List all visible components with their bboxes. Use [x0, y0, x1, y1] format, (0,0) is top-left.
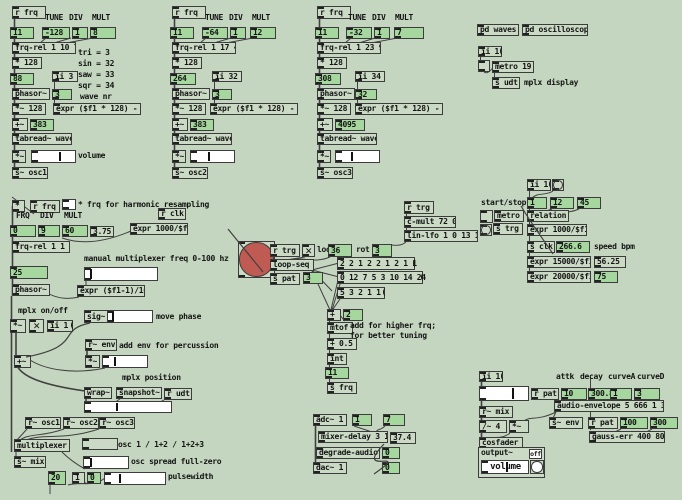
note-num-3[interactable]: 11 [315, 27, 339, 39]
loop-toggle[interactable]: ✕ [302, 244, 315, 257]
expr-wave-2[interactable]: expr ($f1 * 128) - 1 [210, 103, 298, 115]
patch-canvas: r frqTUNEDIVMULT11-12818frq-rel 1 10 7tr… [0, 0, 682, 500]
offset-num-2[interactable]: 383 [190, 119, 214, 131]
s-frq[interactable]: s frq [327, 382, 357, 394]
r-frq-1[interactable]: r frq [12, 6, 46, 19]
div-label-m: DIV [40, 212, 54, 220]
send-osc3[interactable]: s~ osc3 [317, 167, 353, 179]
div-label-3: DIV [372, 14, 386, 22]
spread-slider[interactable] [83, 456, 129, 469]
s-env[interactable]: s~ env [549, 417, 583, 429]
mplx-ii1-msg[interactable]: ii 1 [47, 320, 73, 332]
slider-knob[interactable] [90, 458, 92, 467]
sig-obj[interactable]: sig~ [84, 310, 108, 323]
mult-num-2[interactable]: 12 [250, 27, 276, 39]
offset-num-3[interactable]: 4095 [335, 119, 365, 131]
adc-num1[interactable]: 1 [352, 414, 372, 426]
r-trg-loop[interactable]: r trg [270, 244, 300, 257]
pd-oscilloscope[interactable]: pd oscilloscope [522, 24, 588, 36]
frq-rel-2[interactable]: frq-rel 1 17 4 [172, 42, 236, 54]
curvea-cmt: curveA [608, 373, 635, 381]
phase-num-1[interactable]: 88 [10, 73, 34, 85]
harmonic-cmt: * frq for harmonic resampling [78, 201, 209, 209]
output-bang[interactable] [530, 460, 544, 474]
gauss-err[interactable]: gauss-err 400 800 [589, 431, 665, 443]
toggle-check-icon: ✕ [305, 245, 311, 256]
pat-num[interactable]: 3 [303, 272, 323, 284]
mulsig-1[interactable]: *~ 128 [12, 103, 46, 115]
osc-radio-cmt: osc 1 / 1+2 / 1+2+3 [118, 441, 204, 449]
bang-icon [481, 225, 491, 235]
note-out-num[interactable]: 11 [325, 367, 349, 379]
phasor-1[interactable]: phasor~ [12, 88, 50, 100]
rel-num1[interactable]: 1 [527, 197, 547, 209]
c-mult[interactable]: c-mult 72 0 [404, 216, 456, 228]
toggle-check-icon: ✕ [33, 320, 39, 331]
mult-num-3[interactable]: 7 [394, 27, 424, 39]
offset-num-1[interactable]: 383 [30, 119, 54, 131]
phasor-2[interactable]: phasor~ [172, 88, 210, 100]
tune-num-2[interactable]: -64 [202, 27, 228, 39]
volume-cmt-1: volume [78, 152, 105, 160]
r-frq-2[interactable]: r frq [172, 6, 206, 19]
r-osc3[interactable]: r~ osc3 [99, 417, 135, 429]
adc-obj[interactable]: adc~ 1 [313, 414, 347, 426]
num-5625[interactable]: 56.25 [594, 256, 626, 268]
slider-knob[interactable] [351, 152, 353, 161]
attk-cmt: attk [556, 373, 574, 381]
env-ii1-msg[interactable]: ii 1 [479, 371, 503, 382]
ratio-num[interactable]: 3.75 [90, 226, 114, 237]
expr-20000[interactable]: expr 20000/$f1 [527, 271, 591, 283]
tune-label-3: TUNE [348, 14, 366, 22]
mplx-onoff-cmt: mplx on/off [18, 307, 68, 315]
gauss-num2[interactable]: 300 [650, 417, 678, 429]
rot-num[interactable]: 3 [372, 244, 392, 257]
tuning-cmt2: for better tuning [350, 332, 427, 340]
send-osc2[interactable]: s~ osc2 [172, 167, 208, 179]
tune-num-1[interactable]: -128 [42, 27, 70, 39]
r-env[interactable]: r~ env [85, 339, 117, 351]
mplx-mul[interactable]: *~ [10, 319, 26, 333]
saw-cmt: saw = 33 [78, 71, 114, 79]
bpm-num[interactable]: 266.6 [556, 241, 590, 253]
bang-icon [531, 461, 542, 472]
r-osc2[interactable]: r~ osc2 [63, 417, 99, 429]
phase-num-2[interactable]: 264 [170, 73, 196, 85]
rhythm-msg[interactable]: 2 2 1 2 2 1 2 1 1 [337, 257, 415, 270]
vol-slider-1[interactable] [31, 150, 76, 163]
multiplexer[interactable]: multiplexer [14, 439, 70, 452]
mix-slider[interactable] [479, 386, 529, 401]
r-pat-env[interactable]: r pat [531, 388, 559, 400]
tabread-2[interactable]: tabread~ wave [172, 133, 232, 145]
addsig-2[interactable]: +~ [172, 118, 188, 131]
delay-num[interactable]: 37.4 [390, 432, 416, 444]
add-05[interactable]: + 0.5 [327, 338, 357, 350]
melody-msg[interactable]: 0 12 7 5 3 10 14 24 [337, 271, 423, 284]
expr-1000[interactable]: expr 1000/$f1 [527, 224, 587, 236]
expr-15000[interactable]: expr 15000/$f1 [527, 256, 591, 268]
mult-label-2: MULT [252, 14, 270, 22]
pd-waves[interactable]: pd waves [477, 24, 519, 36]
note-num-2[interactable]: 11 [170, 27, 194, 39]
attk-num[interactable]: 10 [561, 388, 587, 400]
degrade-audio[interactable]: degrade-audio [316, 447, 380, 459]
mulsig-3[interactable]: *~ 128 [317, 103, 351, 115]
metro-display[interactable]: metro 19 [492, 61, 534, 73]
mult-label-3: MULT [395, 14, 413, 22]
env-cmt: add env for percussion [119, 342, 218, 350]
div-label-1: DIV [69, 14, 83, 22]
audio-envelope[interactable]: audio-envelope 5 666 1 3 1 [554, 400, 664, 412]
output-volume[interactable]: volume [481, 460, 529, 474]
phasor-m[interactable]: phasor~ [12, 284, 50, 296]
div-label-2: DIV [229, 14, 243, 22]
osc-radio[interactable] [82, 438, 118, 450]
mplx-toggle[interactable]: ✕ [29, 319, 44, 333]
frq-rel-3[interactable]: frq-rel 1 23 9 [317, 42, 381, 54]
expr-div10[interactable]: expr ($f1-1)/10 [77, 285, 145, 297]
pw-num1[interactable]: 20 [48, 471, 66, 485]
addsig-3[interactable]: +~ [317, 118, 333, 131]
sqr-cmt: sqr = 34 [78, 82, 114, 90]
vol-slider-3[interactable] [335, 150, 380, 163]
mult128-2[interactable]: * 128 [172, 57, 202, 69]
expr-wave-3[interactable]: expr ($f1 * 128) - 1 [355, 103, 443, 115]
div-num-2[interactable]: 1 [230, 27, 246, 39]
volmul-1[interactable]: *~ [12, 150, 26, 163]
num-75[interactable]: 75 [594, 271, 618, 283]
rot-cmt: rot [356, 246, 370, 254]
send-mix[interactable]: s~ mix [14, 456, 46, 468]
manual-mplx-cmt: manual multiplexer freq 0-100 hz [84, 255, 229, 263]
bang-icon [553, 180, 563, 190]
phase-slider[interactable] [107, 310, 153, 323]
degrade-num[interactable]: 0 [382, 447, 400, 459]
addsig-1[interactable]: +~ [12, 118, 28, 131]
mplx-freq-num[interactable]: 25 [10, 266, 48, 279]
sin-cmt: sin = 32 [78, 60, 114, 68]
r-osc1[interactable]: r~ osc1 [25, 417, 61, 429]
int-obj[interactable]: int [327, 353, 347, 365]
r-clk-left[interactable]: r clk [158, 208, 186, 220]
slider-knob[interactable] [512, 388, 514, 399]
mplx-pos-cmt: mplx position [122, 374, 181, 382]
add-num[interactable]: 2 [343, 309, 363, 321]
output-label: output~ [481, 449, 513, 457]
snapshot-obj[interactable]: snapshot~ [116, 387, 162, 399]
seq-ii1-msg[interactable]: ii 1 [527, 179, 551, 191]
rel-num2[interactable]: 12 [550, 197, 574, 209]
startstop-cmt: start/stop [481, 199, 526, 207]
tune-num-3[interactable]: -32 [346, 27, 372, 39]
loop-num[interactable]: 36 [328, 244, 352, 257]
mult-label-1: MULT [92, 14, 110, 22]
div-num-1[interactable]: 1 [72, 27, 88, 39]
r-udt[interactable]: r udt [164, 388, 192, 400]
mulsig-2[interactable]: *~ 128 [172, 103, 206, 115]
tabread-3[interactable]: tabread~ wave [317, 133, 377, 145]
dac-obj[interactable]: dac~ 1 [313, 462, 347, 474]
slider-knob[interactable] [59, 152, 61, 161]
frq-label-m: FRQ [16, 212, 30, 220]
pw-cmt: pulsewidth [168, 473, 213, 481]
frq-rel-1[interactable]: frq-rel 1 10 7 [12, 42, 76, 54]
bang-flash-icon [239, 242, 273, 276]
harmonic-numbox[interactable] [62, 199, 76, 210]
rel-num3[interactable]: 45 [577, 197, 601, 209]
env-mul[interactable]: *~ [85, 355, 100, 368]
wavenum-2[interactable]: 3 [212, 89, 232, 100]
vol-slider-2[interactable] [190, 150, 235, 163]
curved-num[interactable]: 3 [634, 388, 660, 400]
slider-knob[interactable] [506, 462, 508, 472]
mult-num-1[interactable]: 8 [90, 27, 116, 39]
s-trg[interactable]: s trg [493, 223, 523, 235]
pattern-msg[interactable]: 5 3 2 1 1 [337, 287, 385, 299]
wrap-obj[interactable]: wrap~ [84, 387, 112, 399]
display-toggle[interactable] [478, 60, 490, 72]
tabread-1[interactable]: tabread~ wave [12, 133, 72, 145]
mult128-1[interactable]: * 128 [12, 57, 42, 69]
slider-knob[interactable] [90, 269, 92, 279]
send-osc1[interactable]: s~ osc1 [12, 167, 48, 179]
loop-seq[interactable]: loop-seq [270, 259, 314, 271]
mult-label-m: MULT [64, 212, 82, 220]
frq-rel-m[interactable]: frq-rel 1 1 1 [12, 241, 70, 253]
pw-slider[interactable] [104, 472, 166, 485]
pw-num2[interactable]: 1 [72, 472, 85, 484]
slider-knob[interactable] [116, 403, 118, 411]
wavenum-1[interactable]: 3 [52, 89, 72, 100]
note-num-1[interactable]: 11 [10, 27, 34, 39]
add-obj[interactable]: + [327, 309, 341, 321]
send-udt[interactable]: s udt [492, 77, 520, 89]
slider-knob[interactable] [114, 357, 116, 366]
pw-num3[interactable]: 0 [87, 472, 101, 484]
div-num-3[interactable]: 1 [374, 27, 390, 39]
tri-cmt: tri = 3 [78, 49, 110, 57]
curvea-num[interactable]: 1 [610, 388, 632, 400]
mplx-display-cmt: mplx display [524, 79, 578, 87]
frq-num-m[interactable]: 0 [10, 225, 36, 237]
dac-num[interactable]: 0 [382, 462, 400, 474]
trg-bang[interactable] [480, 224, 492, 236]
expr-1000-left[interactable]: expr 1000/$f1 [130, 223, 188, 235]
curved-cmt: curveD [637, 373, 664, 381]
decay-cmt: decay [580, 373, 603, 381]
volmul-2[interactable]: *~ [172, 150, 186, 163]
lin-lfo[interactable]: lin-lfo 1 0 13 13 [404, 230, 478, 242]
r-mix[interactable]: r~ mix [479, 406, 513, 418]
adc-num2[interactable]: 7 [383, 414, 405, 426]
wavenum-3[interactable]: 32 [355, 89, 377, 100]
r-trg-lfo[interactable]: r trg [404, 201, 434, 214]
phase-num-3[interactable]: 308 [315, 73, 341, 85]
s-clk[interactable]: s clk [527, 241, 555, 253]
tune-label-1: TUNE [45, 14, 63, 22]
display-ii1-msg[interactable]: ii 1 [478, 46, 502, 57]
mult128-3[interactable]: * 128 [317, 57, 347, 69]
tuning-cmt: add for higher frq; [350, 322, 436, 330]
metro-toggle[interactable] [480, 210, 493, 223]
mixer-delay[interactable]: mixer-delay 3 1 [318, 431, 388, 443]
tune-label-2: TUNE [205, 14, 223, 22]
env-slider[interactable] [102, 355, 148, 368]
gauss-num1[interactable]: 100 [620, 417, 648, 429]
expr-wave-1[interactable]: expr ($f1 * 128) - 1 [53, 103, 141, 115]
env-mul2[interactable]: *~ [509, 420, 529, 433]
wavenr-cmt: wave nr [80, 93, 112, 101]
slider-knob[interactable] [119, 474, 121, 483]
mplx-pos-slider[interactable] [84, 401, 172, 413]
s-pat[interactable]: s pat [270, 273, 300, 285]
slider-knob[interactable] [112, 312, 114, 321]
bpm-cmt: speed bpm [594, 243, 635, 251]
div4-obj[interactable]: /~ 4 [479, 420, 507, 433]
wavesel-2[interactable]: ii 32 [212, 71, 242, 82]
move-phase-cmt: move phase [156, 313, 201, 321]
volmul-3[interactable]: *~ [317, 150, 331, 163]
spread-cmt: osc spread full-zero [131, 458, 221, 466]
wavesel-3[interactable]: ii 34 [355, 71, 385, 82]
seq-bang[interactable] [552, 179, 564, 191]
metro-obj[interactable]: metro [494, 210, 524, 222]
wavesel-1[interactable]: ii 3 [52, 71, 78, 82]
div-num-m[interactable]: 9 [38, 225, 60, 237]
output-off[interactable]: off [529, 449, 542, 459]
slider-knob[interactable] [208, 152, 210, 161]
mult-num-m[interactable]: 60 [62, 225, 88, 237]
r-frq-3[interactable]: r frq [317, 6, 351, 19]
phasor-3[interactable]: phasor~ [317, 88, 355, 100]
relation-obj[interactable]: relation [527, 210, 569, 222]
r-pat-gauss[interactable]: r pat [588, 417, 618, 429]
mplx-add[interactable]: +~ [14, 355, 31, 368]
manual-mplx-slider[interactable] [84, 267, 158, 281]
